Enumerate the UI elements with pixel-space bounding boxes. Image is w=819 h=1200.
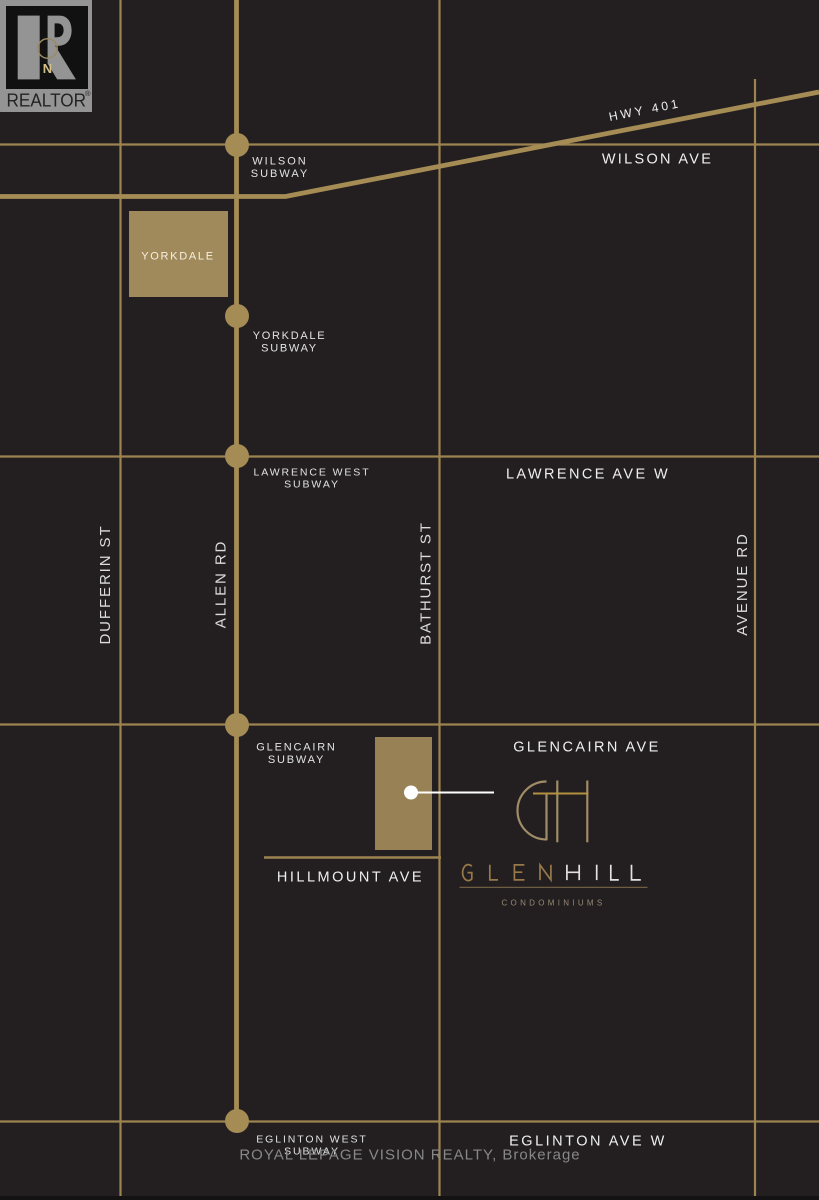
svg-text:SUBWAY: SUBWAY xyxy=(261,343,318,355)
svg-text:WILSON AVE: WILSON AVE xyxy=(602,152,713,168)
svg-text:LAWRENCE WEST: LAWRENCE WEST xyxy=(253,467,370,479)
svg-text:®: ® xyxy=(85,89,91,98)
svg-text:N: N xyxy=(43,61,52,76)
svg-text:CONDOMINIUMS: CONDOMINIUMS xyxy=(501,899,605,908)
svg-text:DUFFERIN ST: DUFFERIN ST xyxy=(97,524,114,644)
svg-text:ROYAL LEPAGE VISION REALTY, Br: ROYAL LEPAGE VISION REALTY, Brokerage xyxy=(239,1147,580,1164)
svg-text:LAWRENCE AVE W: LAWRENCE AVE W xyxy=(506,467,670,483)
svg-text:ALLEN RD: ALLEN RD xyxy=(213,540,230,629)
svg-text:AVENUE RD: AVENUE RD xyxy=(734,532,751,636)
svg-text:EGLINTON WEST: EGLINTON WEST xyxy=(256,1134,367,1146)
svg-text:REALTOR: REALTOR xyxy=(7,90,87,111)
svg-text:YORKDALE: YORKDALE xyxy=(253,330,327,342)
svg-text:GLENCAIRN: GLENCAIRN xyxy=(256,742,336,754)
svg-text:YORKDALE: YORKDALE xyxy=(141,251,215,263)
svg-text:SUBWAY: SUBWAY xyxy=(268,754,325,766)
svg-text:SUBWAY: SUBWAY xyxy=(251,168,309,180)
svg-text:GLENCAIRN AVE: GLENCAIRN AVE xyxy=(513,740,661,756)
svg-text:SUBWAY: SUBWAY xyxy=(284,479,340,491)
svg-text:HILLMOUNT AVE: HILLMOUNT AVE xyxy=(277,870,424,886)
svg-text:BATHURST ST: BATHURST ST xyxy=(418,521,435,645)
svg-text:WILSON: WILSON xyxy=(252,156,307,168)
